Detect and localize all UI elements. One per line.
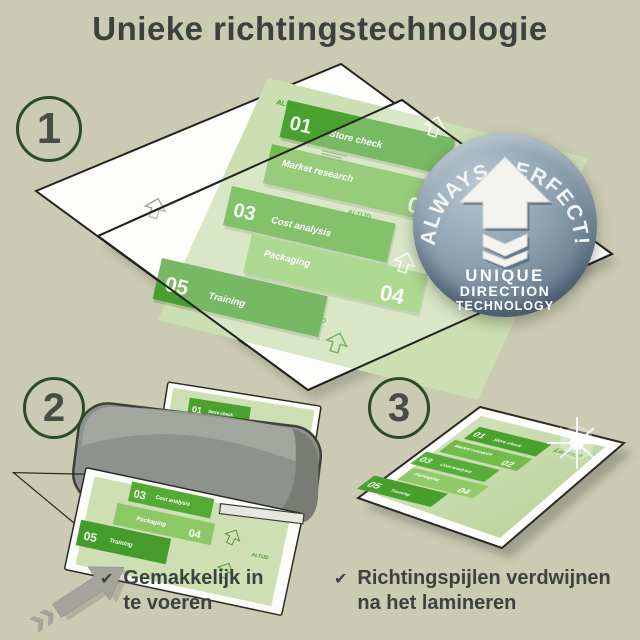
step-number: 3 bbox=[388, 386, 410, 431]
checklist-text: Gemakkelijk in bbox=[123, 566, 263, 591]
step-number: 2 bbox=[43, 386, 65, 431]
illustrations: 01 Store check Market research 02 03 Co bbox=[0, 0, 640, 640]
step-circle-1: 1 bbox=[16, 96, 82, 162]
badge-line-technology: TECHNOLOGY bbox=[456, 299, 554, 313]
checklist-item-easy-feed: ✔ Gemakkelijk in te voeren bbox=[100, 566, 315, 616]
checklist-text: te voeren bbox=[123, 591, 263, 616]
check-icon: ✔ bbox=[100, 569, 113, 616]
checklist-text: Richtingspijlen verdwijnen bbox=[357, 566, 610, 591]
badge-line-direction: DIRECTION bbox=[460, 283, 551, 299]
step-circle-3: 3 bbox=[368, 377, 430, 439]
svg-text:03: 03 bbox=[132, 488, 146, 502]
always-perfect-badge: ALWAYS PERFECT! UNIQUE DIRECTION TECHNOL… bbox=[413, 133, 597, 317]
check-icon: ✔ bbox=[334, 569, 347, 616]
checklist-text: na het lamineren bbox=[357, 591, 610, 616]
poster: Unieke richtingstechnologie bbox=[0, 0, 640, 640]
step-circle-2: 2 bbox=[23, 377, 85, 439]
step-number: 1 bbox=[37, 104, 61, 154]
checklist-item-arrows-disappear: ✔ Richtingspijlen verdwijnen na het lami… bbox=[334, 566, 629, 616]
